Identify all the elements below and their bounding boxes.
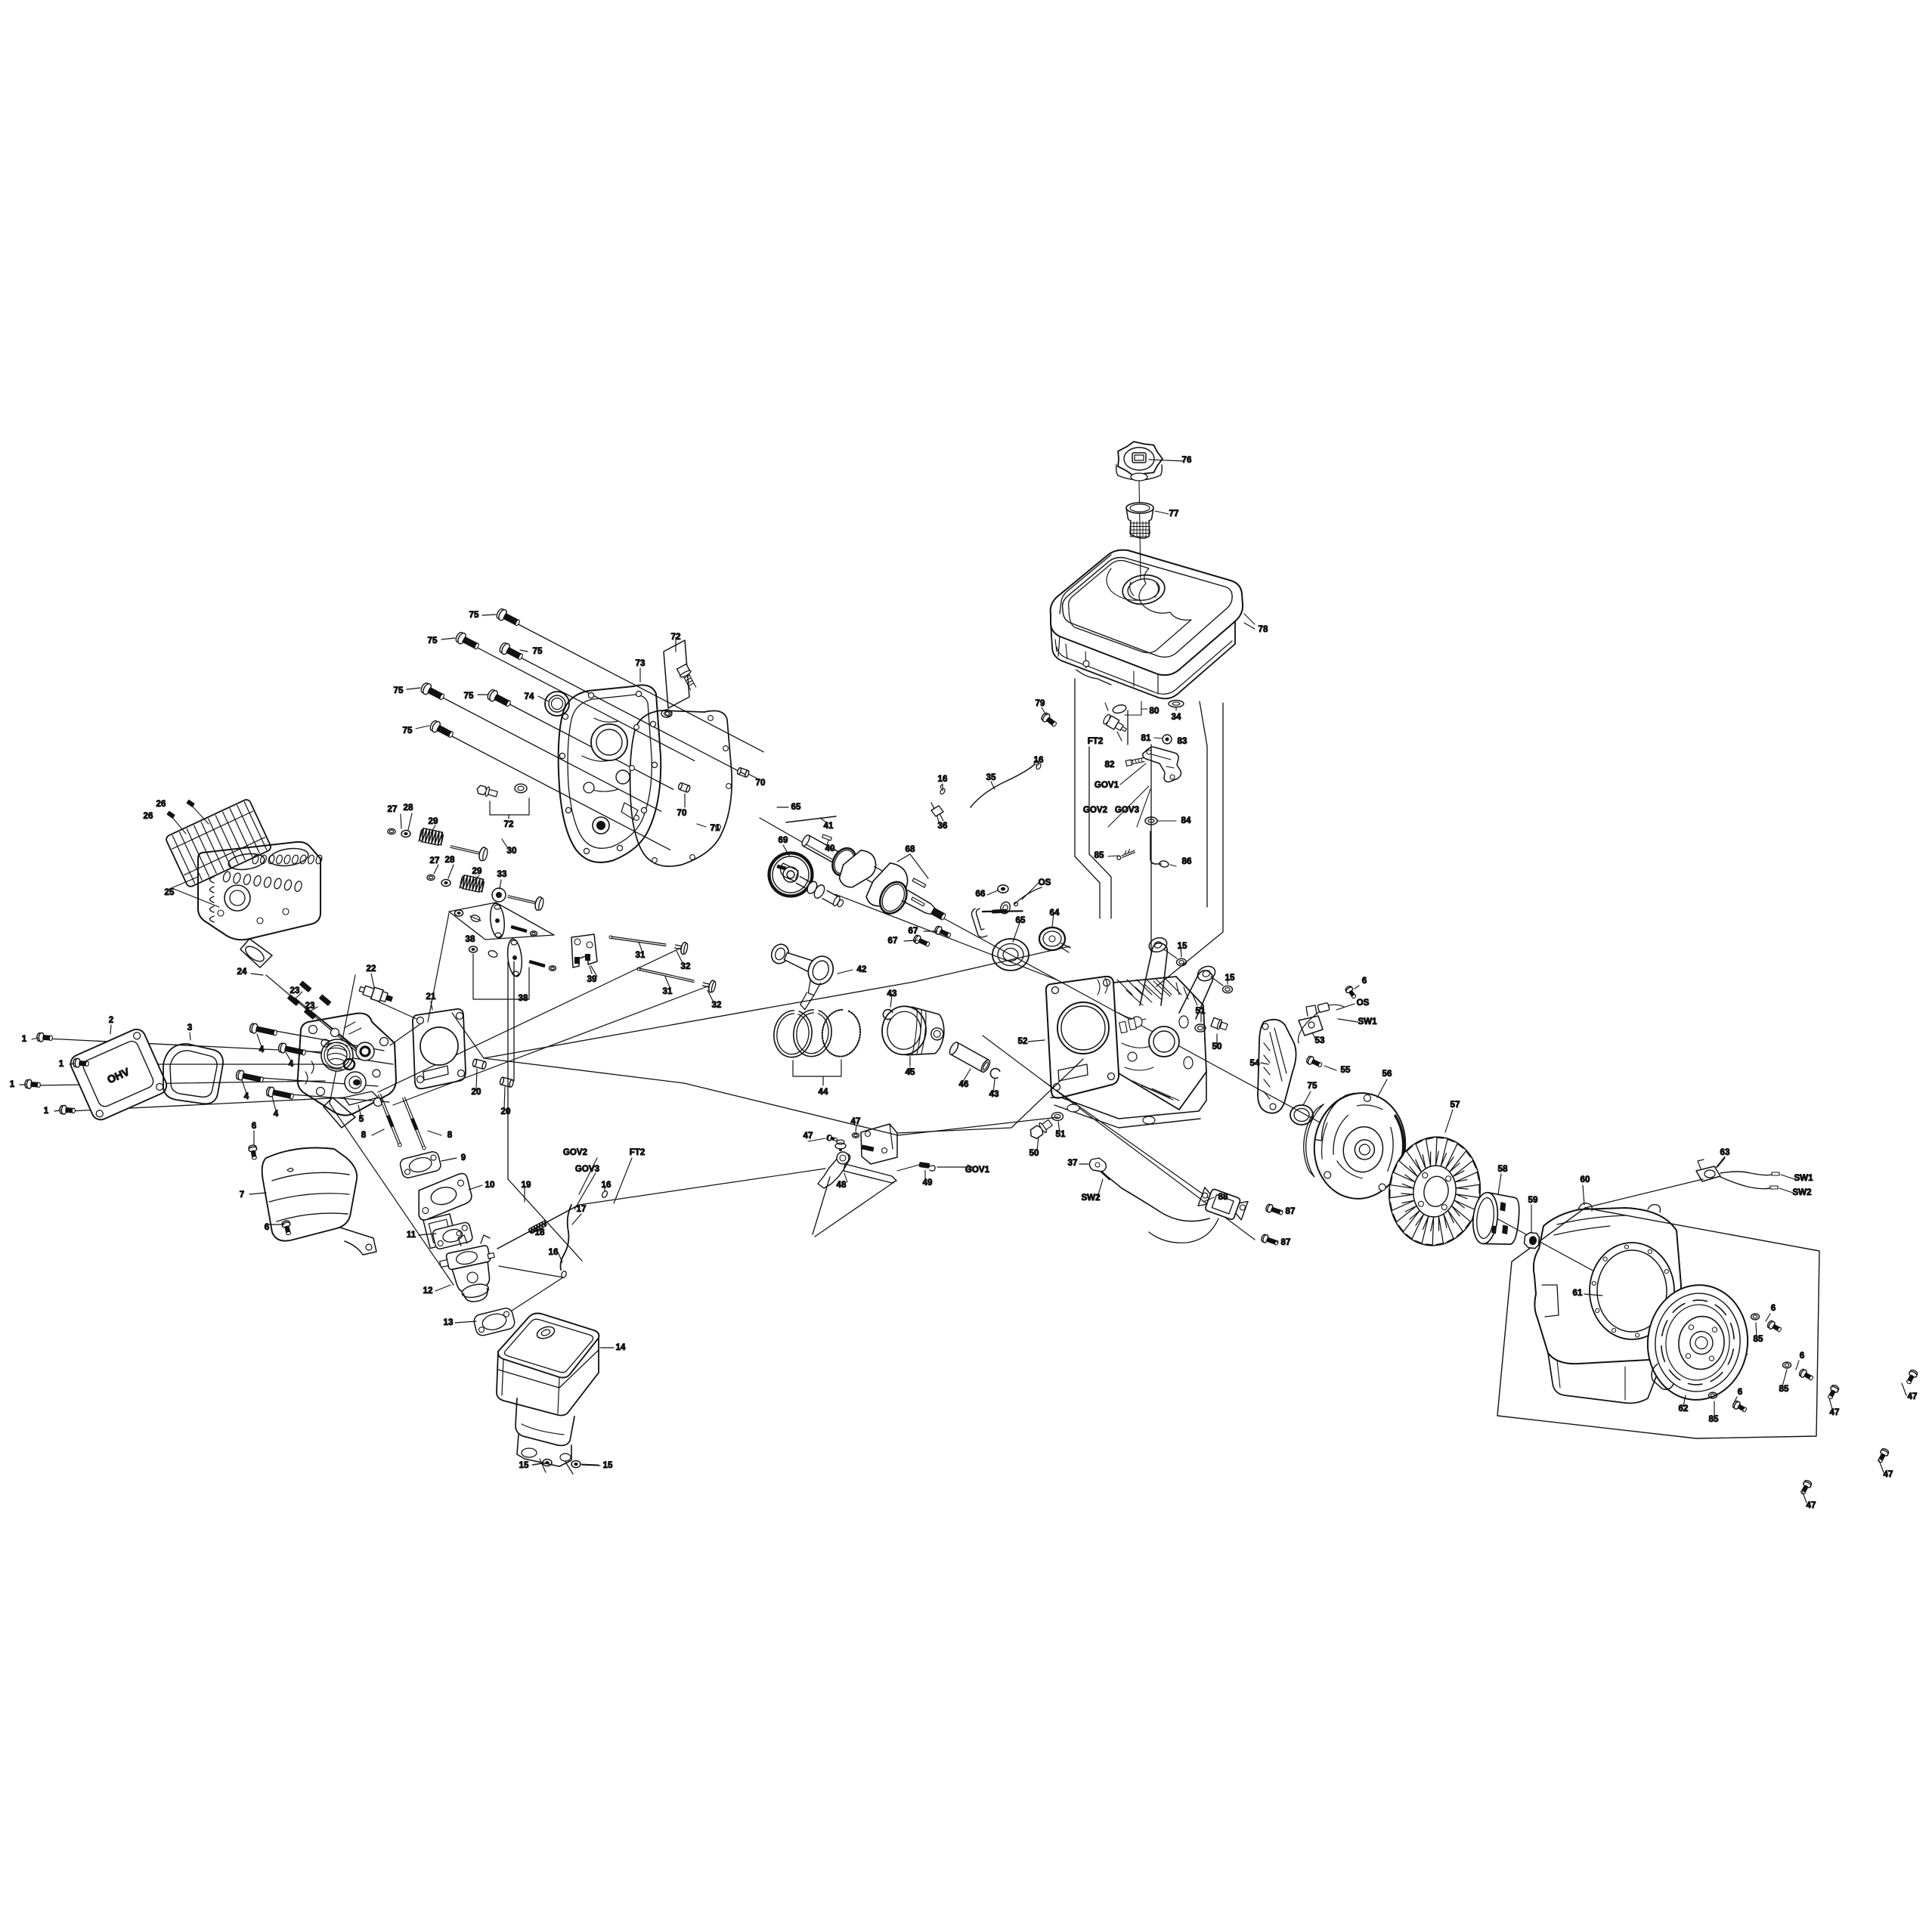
svg-text:GOV1: GOV1 [965,1165,990,1175]
svg-text:4: 4 [244,1091,249,1101]
svg-text:23: 23 [305,1001,315,1011]
svg-text:75: 75 [469,610,479,620]
svg-text:19: 19 [522,1180,531,1190]
svg-text:29: 29 [429,816,438,826]
svg-text:4: 4 [259,1045,265,1054]
svg-text:4: 4 [289,1059,294,1069]
svg-text:43: 43 [989,1089,999,1099]
svg-text:75: 75 [1308,1081,1317,1091]
svg-text:26: 26 [156,799,166,809]
svg-text:57: 57 [1451,1100,1460,1110]
svg-text:SW1: SW1 [1794,1173,1813,1183]
svg-text:31: 31 [663,986,673,996]
svg-text:5: 5 [359,1114,364,1124]
svg-text:2: 2 [109,1015,113,1025]
svg-text:62: 62 [1679,1404,1689,1413]
svg-text:58: 58 [1498,1164,1508,1174]
svg-text:39: 39 [587,974,597,984]
svg-text:33: 33 [497,869,507,879]
svg-text:6: 6 [265,1222,270,1232]
svg-text:OS: OS [1039,878,1051,887]
svg-text:60: 60 [1581,1175,1590,1184]
svg-text:16: 16 [938,774,948,784]
svg-text:30: 30 [507,846,517,856]
svg-text:GOV2: GOV2 [1083,805,1107,815]
svg-text:28: 28 [445,855,455,865]
svg-text:1: 1 [59,1059,64,1069]
svg-text:10: 10 [485,1180,495,1190]
svg-text:38: 38 [519,993,528,1003]
svg-text:83: 83 [1178,736,1187,746]
svg-text:65: 65 [791,802,801,812]
svg-text:8: 8 [447,1130,453,1140]
svg-text:27: 27 [430,856,440,865]
svg-text:18: 18 [535,1228,545,1237]
svg-text:47: 47 [1908,1392,1918,1401]
svg-text:6: 6 [1771,1303,1776,1313]
svg-text:71: 71 [711,823,720,833]
svg-text:24: 24 [237,967,247,977]
svg-text:76: 76 [1182,455,1192,465]
svg-text:3: 3 [187,1023,193,1033]
svg-text:54: 54 [1250,1058,1260,1068]
svg-text:75: 75 [533,646,543,656]
svg-text:50: 50 [1212,1042,1222,1051]
svg-text:40: 40 [825,844,835,853]
svg-text:36: 36 [938,821,948,831]
svg-text:75: 75 [464,691,474,701]
svg-text:86: 86 [1182,856,1192,866]
svg-text:20: 20 [501,1107,511,1116]
svg-text:29: 29 [472,866,482,876]
svg-text:44: 44 [819,1087,828,1097]
svg-text:20: 20 [472,1087,481,1097]
svg-text:81: 81 [1141,733,1151,743]
svg-text:52: 52 [1018,1036,1028,1046]
svg-text:31: 31 [636,950,646,960]
svg-text:GOV3: GOV3 [575,1164,600,1174]
svg-text:6: 6 [1800,1351,1805,1361]
svg-text:15: 15 [1178,941,1187,951]
svg-text:85: 85 [1094,850,1104,860]
svg-text:SW2: SW2 [1792,1187,1811,1197]
svg-text:37: 37 [1068,1158,1078,1168]
svg-text:13: 13 [444,1317,454,1327]
svg-text:27: 27 [388,804,398,814]
svg-text:34: 34 [1172,712,1181,722]
svg-text:72: 72 [504,819,514,829]
svg-text:4: 4 [274,1109,279,1119]
svg-text:51: 51 [1196,1006,1206,1016]
svg-text:47: 47 [851,1116,861,1126]
svg-text:75: 75 [428,636,438,646]
svg-text:74: 74 [525,692,534,701]
svg-text:68: 68 [906,844,915,854]
svg-text:53: 53 [1315,1036,1325,1045]
svg-text:72: 72 [671,632,681,642]
svg-text:15: 15 [1225,973,1235,983]
svg-text:21: 21 [426,992,436,1002]
svg-text:17: 17 [577,1204,587,1214]
svg-text:73: 73 [636,658,646,668]
svg-text:32: 32 [712,1000,722,1010]
svg-text:48: 48 [837,1180,847,1190]
svg-text:1: 1 [44,1106,49,1116]
svg-text:43: 43 [887,989,897,999]
svg-text:75: 75 [394,686,404,695]
svg-text:85: 85 [1754,1334,1763,1344]
svg-text:67: 67 [909,926,918,936]
svg-text:8: 8 [361,1130,367,1140]
svg-text:75: 75 [403,726,413,735]
svg-text:15: 15 [603,1460,613,1470]
svg-text:1: 1 [10,1079,15,1089]
svg-text:47: 47 [803,1131,813,1141]
svg-text:55: 55 [1341,1065,1351,1075]
svg-text:88: 88 [1218,1192,1228,1202]
svg-text:79: 79 [1036,698,1045,708]
svg-text:25: 25 [165,887,175,897]
svg-text:FT2: FT2 [630,1147,646,1157]
svg-text:SW1: SW1 [1358,1017,1377,1026]
svg-text:26: 26 [144,811,153,821]
svg-text:77: 77 [1169,509,1179,519]
svg-text:14: 14 [616,1342,626,1352]
svg-text:59: 59 [1528,1195,1538,1205]
svg-text:46: 46 [959,1079,969,1089]
svg-text:66: 66 [976,889,986,899]
svg-text:45: 45 [906,1067,915,1077]
svg-text:65: 65 [1016,915,1026,925]
svg-text:OS: OS [1357,998,1370,1008]
svg-text:67: 67 [888,936,898,946]
svg-text:11: 11 [407,1230,416,1240]
svg-text:6: 6 [1738,1387,1743,1397]
svg-text:70: 70 [677,808,687,818]
svg-text:84: 84 [1181,816,1191,825]
svg-text:87: 87 [1281,1237,1291,1247]
svg-text:15: 15 [519,1460,529,1470]
svg-text:23: 23 [290,986,300,995]
svg-text:70: 70 [756,778,766,788]
svg-text:32: 32 [681,961,691,971]
svg-text:47: 47 [1807,1500,1816,1510]
svg-text:47: 47 [1884,1469,1893,1479]
svg-text:GOV1: GOV1 [1094,780,1119,790]
svg-text:12: 12 [423,1286,433,1296]
svg-text:GOV2: GOV2 [563,1147,587,1157]
svg-text:51: 51 [1056,1129,1066,1139]
svg-text:9: 9 [461,1153,466,1163]
svg-text:47: 47 [1830,1407,1840,1417]
svg-text:56: 56 [1382,1069,1392,1079]
svg-text:FT2: FT2 [1088,736,1104,746]
svg-text:6: 6 [1362,976,1367,986]
svg-text:50: 50 [1029,1148,1039,1158]
svg-text:22: 22 [367,964,376,974]
svg-text:87: 87 [1286,1206,1296,1216]
svg-text:63: 63 [1720,1147,1730,1157]
svg-text:35: 35 [986,772,996,782]
svg-text:SW2: SW2 [1081,1193,1100,1203]
svg-text:42: 42 [857,964,867,974]
svg-text:GOV3: GOV3 [1115,805,1140,815]
svg-text:41: 41 [824,821,834,831]
svg-text:16: 16 [602,1180,611,1190]
svg-text:16: 16 [1034,755,1044,765]
svg-text:16: 16 [549,1247,559,1257]
svg-text:49: 49 [923,1178,933,1187]
svg-text:80: 80 [1150,706,1160,716]
svg-text:1: 1 [22,1034,27,1044]
svg-text:82: 82 [1105,760,1115,769]
svg-text:78: 78 [1259,624,1268,634]
svg-text:7: 7 [240,1190,244,1200]
svg-text:38: 38 [466,934,475,944]
svg-text:85: 85 [1779,1384,1789,1394]
svg-text:61: 61 [1573,1288,1583,1298]
svg-text:85: 85 [1709,1414,1719,1424]
svg-text:69: 69 [779,835,788,845]
svg-text:6: 6 [252,1121,257,1131]
svg-text:64: 64 [1050,908,1060,918]
svg-text:28: 28 [404,803,413,813]
